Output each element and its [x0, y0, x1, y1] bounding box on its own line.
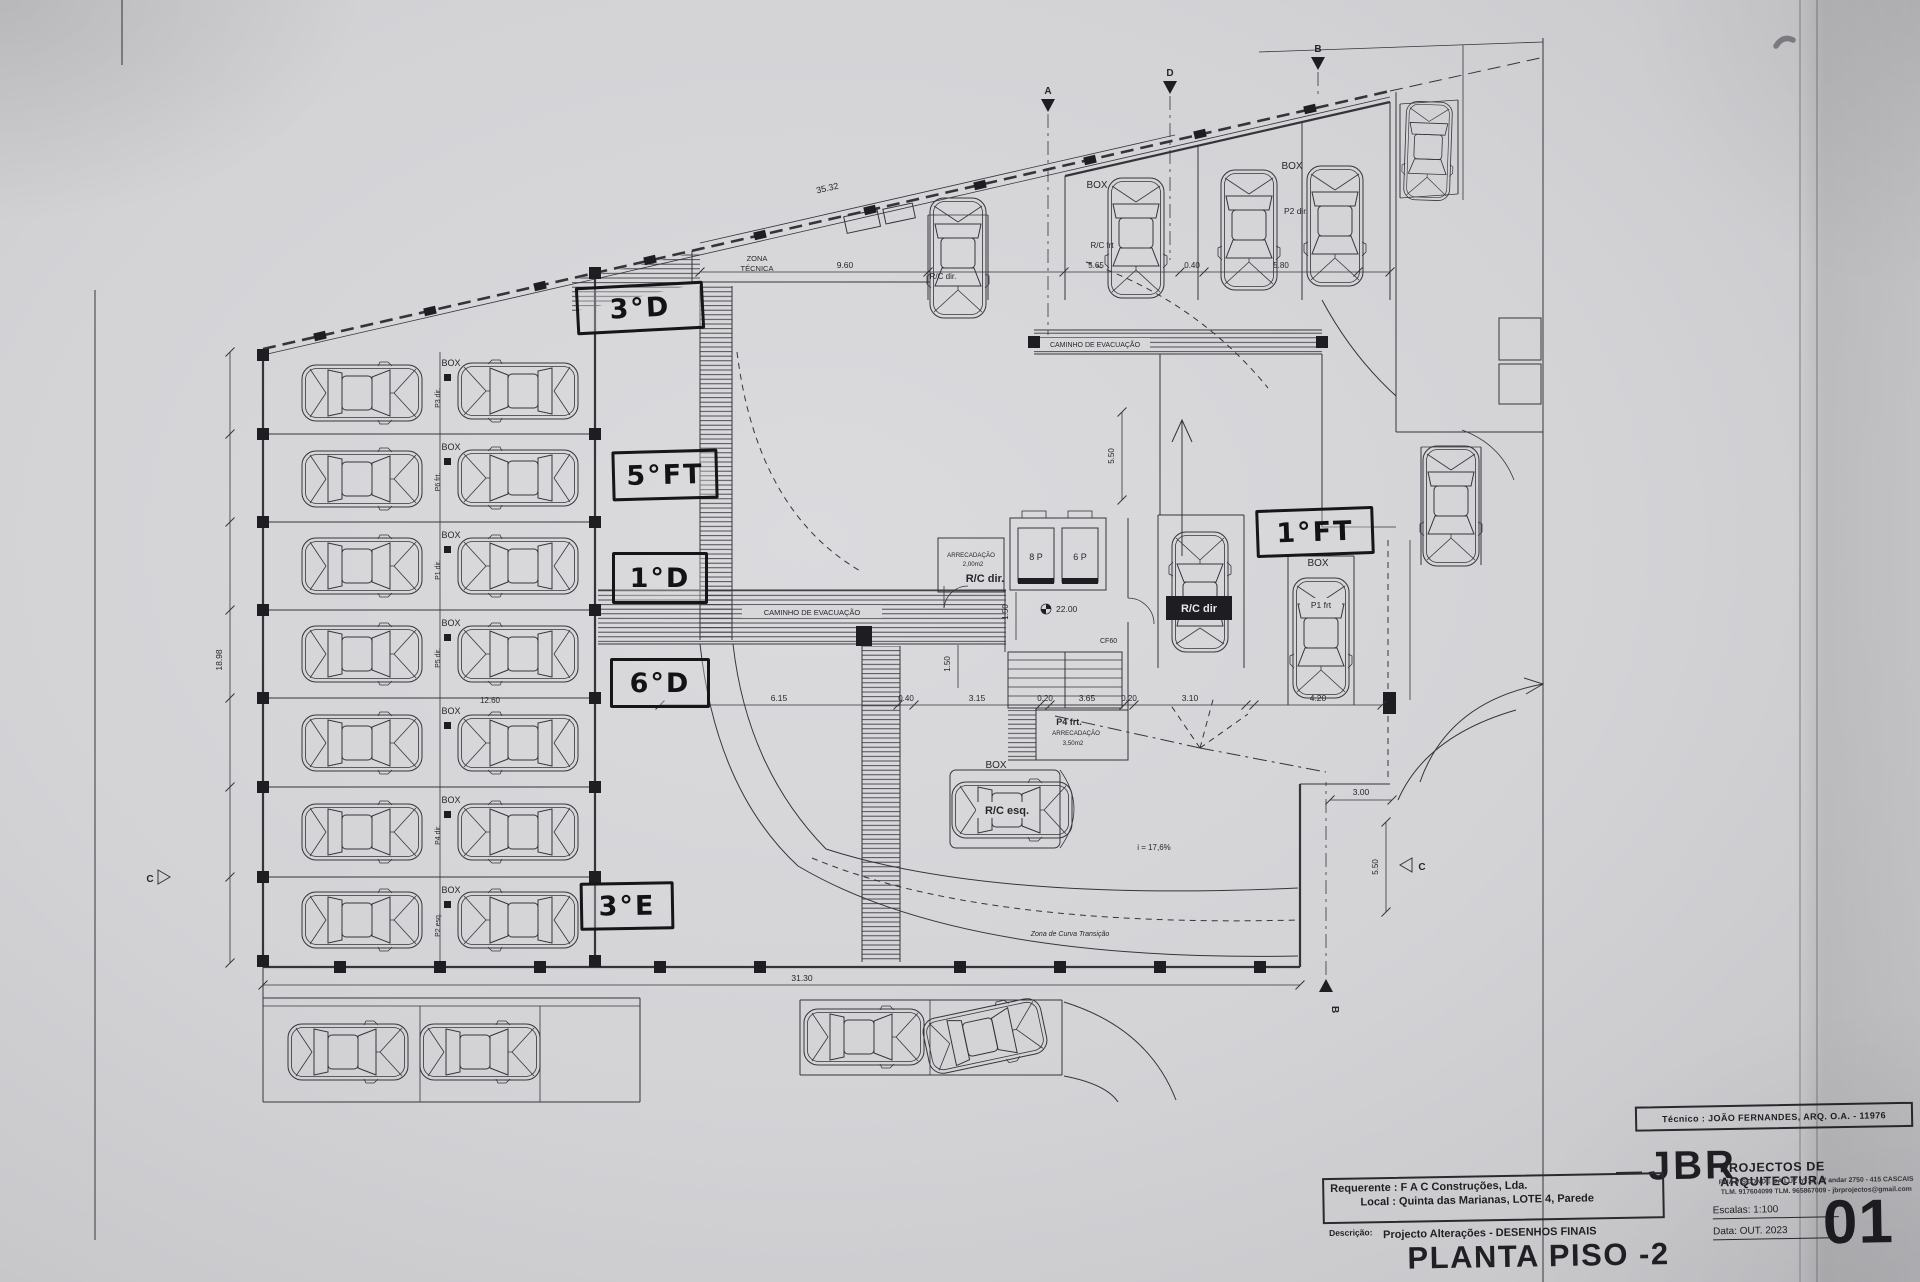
handwritten-unit-label-1d: 1°D: [612, 552, 708, 604]
section-b-top-label: B: [1314, 44, 1321, 55]
stall-code-4: P5 dir.: [435, 648, 442, 668]
dim-0-20-a: 0.20: [1037, 694, 1053, 703]
dim-6-15: 6.15: [771, 693, 788, 703]
section-markers: A D B B C C: [146, 44, 1425, 1013]
car-icon: [458, 712, 578, 774]
stall-box-5: BOX: [441, 706, 460, 716]
drawing-title: PLANTA PISO -2: [1407, 1236, 1670, 1277]
dim-1-50-b: 1.50: [1001, 604, 1010, 620]
handwritten-unit-label-6d: 6°D: [610, 658, 710, 708]
caminho-evacuacao-label-top: CAMINHO DE EVACUAÇÃO: [1050, 340, 1141, 349]
car-icon: [288, 1021, 408, 1083]
stall-box-3: BOX: [441, 530, 460, 540]
car-icon: [458, 889, 578, 951]
stall-code-2: P6 frt.: [435, 473, 442, 492]
dim-35-32: 35.32: [815, 181, 839, 196]
section-c-left-label: C: [146, 874, 153, 885]
car-icon: [1304, 166, 1366, 286]
section-b-bottom-label: B: [1329, 1006, 1340, 1013]
car-icon: [804, 1006, 924, 1068]
scale-field: Escalas: 1:100: [1713, 1203, 1839, 1219]
dim-12-60: 12.60: [480, 696, 501, 705]
stall-code-3: P1 dir.: [435, 560, 442, 580]
stall-box-6: BOX: [441, 795, 460, 805]
cf60-label: CF60: [1100, 638, 1117, 645]
sheet-number: 01: [1822, 1186, 1894, 1258]
date-field: Data: OUT. 2023: [1713, 1224, 1839, 1240]
zona-tecnica-label-2: TÉCNICA: [741, 264, 774, 273]
dim-0-40-mid: 0.40: [898, 694, 914, 703]
dim-3-65: 3.65: [1079, 693, 1096, 703]
car-icon: [302, 623, 422, 685]
stall-box-4: BOX: [441, 618, 460, 628]
dim-5-65: 5.65: [1088, 261, 1104, 270]
stall-box-1: BOX: [441, 358, 460, 368]
car-top-label: R/C dir.: [930, 272, 957, 281]
handwritten-text: 3°D: [609, 291, 671, 325]
car-icon: [302, 801, 422, 863]
dim-9-60: 9.60: [837, 260, 854, 270]
dim-5-50-mid: 5.50: [1107, 448, 1116, 464]
title-block: Técnico : JOÃO FERNANDES, ARQ. O.A. - 11…: [1319, 1094, 1920, 1282]
handwritten-unit-label-3d: 3°D: [575, 281, 705, 336]
stall-box-7: BOX: [441, 885, 460, 895]
car-icon: [302, 889, 422, 951]
car-icon: [1169, 532, 1231, 652]
box-label-topright-2: BOX: [1281, 161, 1302, 172]
rc-dir-badge: R/C dir: [1181, 603, 1218, 615]
handwritten-text: 5°FT: [626, 458, 704, 491]
dim-3-15: 3.15: [969, 693, 986, 703]
floor-plan-drawing: A D B B C C ZONA TÉCNICA CAMINHO DE EVAC…: [0, 0, 1920, 1282]
client-box: Requerente : F A C Construções, Lda. Loc…: [1322, 1172, 1665, 1224]
description-label: Descrição:: [1329, 1227, 1373, 1238]
box-label-topright-1: BOX: [1086, 180, 1107, 191]
slope-label: i = 17,6%: [1137, 843, 1171, 852]
dim-1-50-a: 1.50: [943, 656, 952, 672]
dim-31-30: 31.30: [791, 973, 813, 983]
dim-3-00: 3.00: [1353, 787, 1370, 797]
scanned-floor-plan-photo: A D B B C C ZONA TÉCNICA CAMINHO DE EVAC…: [0, 0, 1920, 1282]
arrecadacao1-area: 2,00m2: [963, 561, 984, 568]
car-icon: [458, 447, 578, 509]
stall-code-1: P3 dir.: [435, 388, 442, 408]
section-a-label: A: [1044, 86, 1051, 97]
p1-frt-label: P1 frt: [1311, 600, 1332, 610]
caminho-evacuacao-label: CAMINHO DE EVACUAÇÃO: [764, 608, 861, 617]
car-icon: [458, 360, 578, 422]
car-icon: [458, 535, 578, 597]
handwritten-unit-label-1ft: 1°FT: [1255, 506, 1375, 558]
building-core: [856, 511, 1154, 848]
car-icon: [458, 623, 578, 685]
handwritten-text: 1°FT: [1276, 515, 1354, 549]
stall-code-6: P4 dir.: [435, 825, 442, 845]
dim-4-20: 4.20: [1310, 693, 1327, 703]
dim-0-20-b: 0.20: [1121, 694, 1137, 703]
arrecadacao2-area: 3,50m2: [1063, 740, 1084, 747]
technician-strip: Técnico : JOÃO FERNANDES, ARQ. O.A. - 11…: [1635, 1102, 1913, 1132]
exterior-parking: [263, 967, 1176, 1102]
box-label-p1: BOX: [1307, 558, 1328, 569]
rc-frt-label: R/C frt: [1090, 241, 1114, 250]
stall-box-2: BOX: [441, 442, 460, 452]
dim-5-80: 5.80: [1273, 261, 1289, 270]
garage-walls: [263, 91, 1396, 967]
section-d-label: D: [1166, 68, 1173, 79]
level-label: 22.00: [1056, 604, 1078, 614]
car-icon: [302, 448, 422, 510]
elevator-right-label: 6 P: [1073, 552, 1087, 562]
elevator-left-label: 8 P: [1029, 552, 1043, 562]
handwritten-text: 3°E: [598, 890, 655, 922]
dim-3-10: 3.10: [1182, 693, 1199, 703]
p4-frt-label: P4 frt.: [1056, 717, 1082, 727]
car-icon: [302, 535, 422, 597]
handwritten-text: 1°D: [630, 563, 691, 594]
plan-labels: ZONA TÉCNICA CAMINHO DE EVACUAÇÃO CAMINH…: [741, 161, 1342, 938]
car-icon: [1105, 178, 1167, 298]
car-icon: [302, 362, 422, 424]
arrecadacao1-title: ARRECADAÇÃO: [947, 552, 995, 559]
curva-transicao-label: Zona de Curva Transição: [1030, 931, 1110, 938]
box-label-rcesq: BOX: [985, 760, 1006, 771]
car-icon: [920, 993, 1050, 1079]
car-icon: [420, 1021, 540, 1083]
car-icon: [1401, 101, 1455, 201]
car-icon: [1290, 578, 1352, 698]
rc-dir-label: R/C dir.: [966, 573, 1005, 585]
dim-0-40-top: 0.40: [1184, 261, 1200, 270]
site-surroundings: [1383, 45, 1543, 800]
handwritten-text: 6°D: [630, 668, 691, 699]
binder-mark: [1776, 38, 1793, 46]
car-icon: [927, 198, 989, 318]
section-c-right-label: C: [1418, 862, 1425, 873]
car-icon: [458, 801, 578, 863]
car-icon: [302, 712, 422, 774]
rc-esq-label: R/C esq.: [985, 805, 1029, 817]
stall-row-labels: BOX P3 dir. BOX P6 frt. BOX P1 dir. BOX …: [435, 358, 461, 937]
car-icon: [1420, 446, 1482, 566]
stall-code-7: P2 esq.: [435, 913, 442, 937]
dim-18-98: 18.98: [214, 649, 224, 671]
handwritten-unit-label-5ft: 5°FT: [611, 449, 718, 502]
dim-5-50-right: 5.50: [1371, 859, 1380, 875]
zona-tecnica-label-1: ZONA: [747, 254, 768, 263]
p2-dir-label: P2 dir.: [1284, 206, 1308, 216]
arrecadacao2-title: ARRECADAÇÃO: [1052, 730, 1100, 737]
handwritten-unit-label-3e: 3°E: [580, 881, 675, 931]
